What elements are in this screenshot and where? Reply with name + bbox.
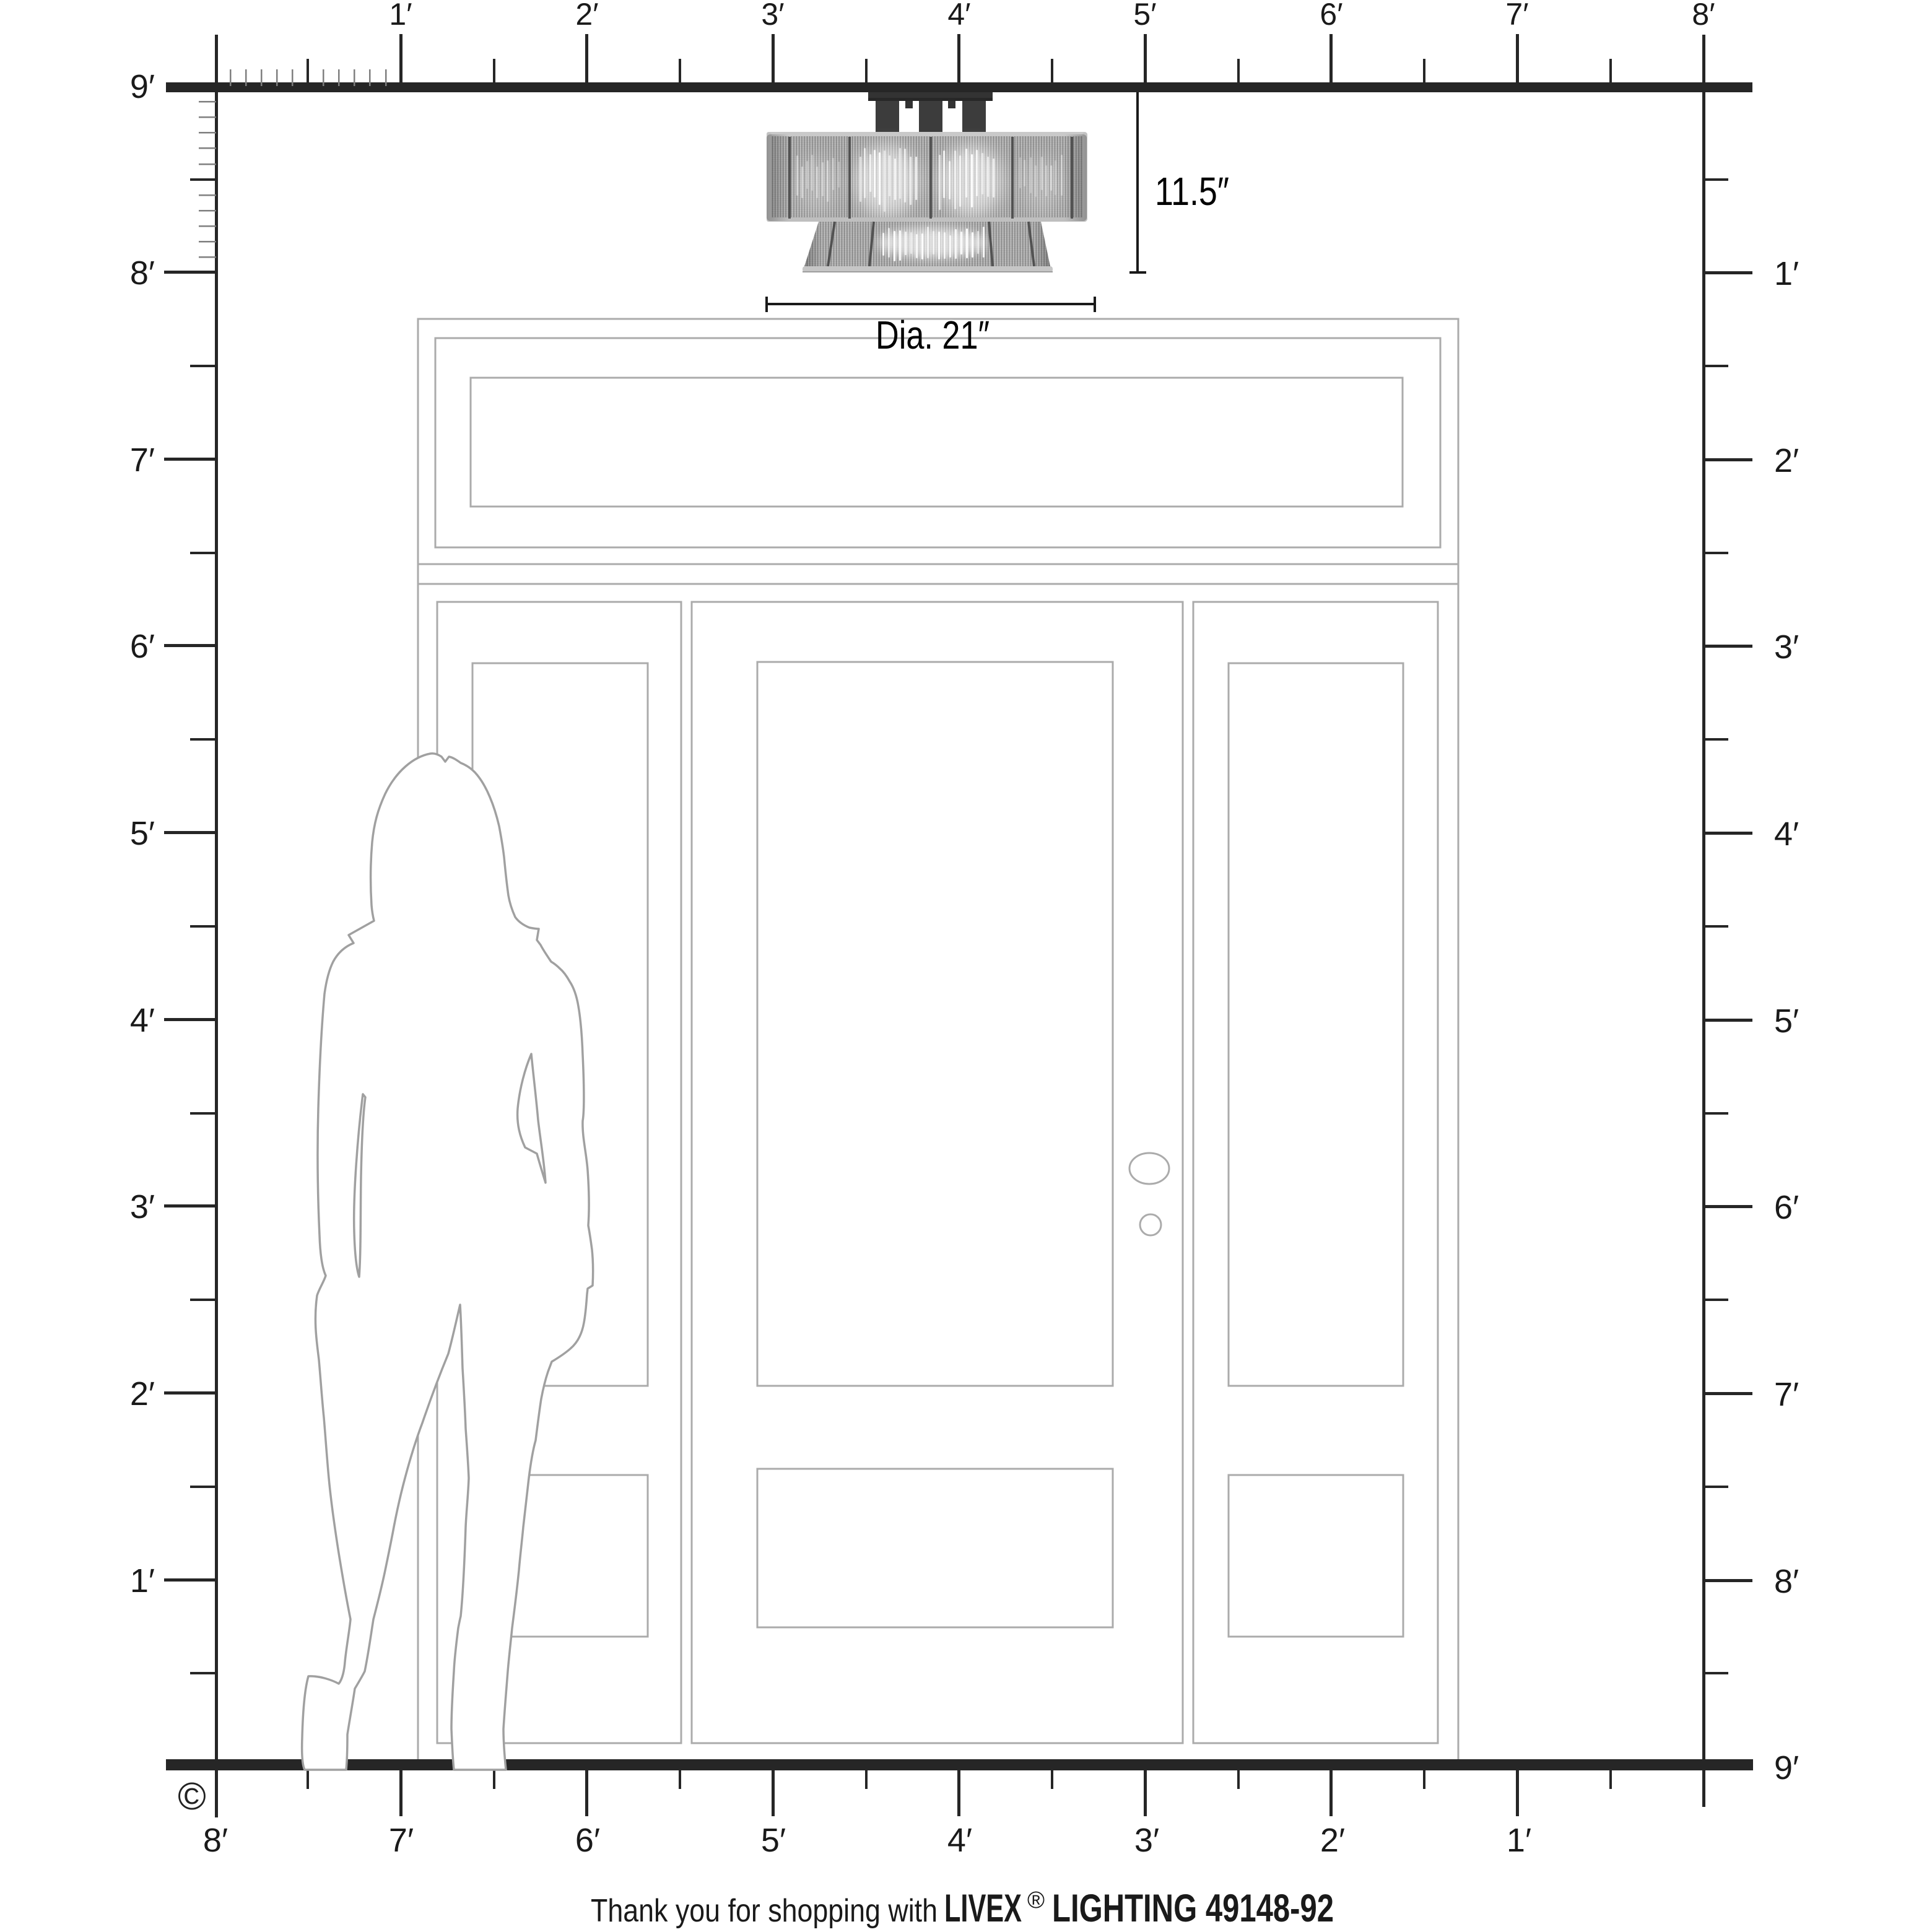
svg-text:4′: 4′ bbox=[947, 0, 970, 32]
svg-text:2′: 2′ bbox=[130, 1375, 155, 1412]
svg-text:8′: 8′ bbox=[1774, 1563, 1799, 1600]
svg-text:4′: 4′ bbox=[947, 1822, 972, 1859]
svg-text:Thank you for shopping with: Thank you for shopping with bbox=[591, 1893, 938, 1929]
svg-text:LIVEX: LIVEX bbox=[944, 1887, 1022, 1930]
svg-text:9′: 9′ bbox=[1774, 1749, 1799, 1786]
svg-text:LIGHTING 49148-92: LIGHTING 49148-92 bbox=[1052, 1887, 1334, 1930]
svg-text:8′: 8′ bbox=[130, 255, 155, 292]
svg-text:7′: 7′ bbox=[1505, 0, 1528, 32]
svg-text:5′: 5′ bbox=[761, 1822, 786, 1859]
svg-text:2′: 2′ bbox=[1320, 1822, 1345, 1859]
svg-text:©: © bbox=[178, 1775, 206, 1818]
svg-text:1′: 1′ bbox=[1507, 1822, 1531, 1859]
svg-text:5′: 5′ bbox=[1133, 0, 1156, 32]
svg-text:6′: 6′ bbox=[130, 628, 155, 665]
svg-text:4′: 4′ bbox=[130, 1002, 155, 1039]
svg-text:2′: 2′ bbox=[575, 0, 598, 32]
svg-text:7′: 7′ bbox=[389, 1822, 414, 1859]
svg-text:7′: 7′ bbox=[1774, 1376, 1799, 1413]
svg-text:8′: 8′ bbox=[203, 1822, 228, 1859]
svg-text:2′: 2′ bbox=[1774, 442, 1799, 479]
svg-text:®: ® bbox=[1027, 1887, 1045, 1913]
svg-text:1′: 1′ bbox=[130, 1562, 155, 1599]
svg-text:3′: 3′ bbox=[761, 0, 784, 32]
svg-text:4′: 4′ bbox=[1774, 816, 1799, 853]
svg-text:5′: 5′ bbox=[1774, 1003, 1799, 1040]
svg-text:11.5″: 11.5″ bbox=[1155, 169, 1229, 214]
svg-text:5′: 5′ bbox=[130, 815, 155, 852]
svg-text:6′: 6′ bbox=[575, 1822, 600, 1859]
svg-text:7′: 7′ bbox=[130, 442, 155, 479]
svg-text:1′: 1′ bbox=[1774, 255, 1799, 292]
svg-text:3′: 3′ bbox=[1774, 629, 1799, 666]
svg-text:1′: 1′ bbox=[389, 0, 412, 32]
svg-text:9′: 9′ bbox=[130, 68, 155, 105]
svg-text:Dia. 21″: Dia. 21″ bbox=[876, 313, 990, 357]
svg-text:8′: 8′ bbox=[1692, 0, 1715, 32]
svg-text:6′: 6′ bbox=[1320, 0, 1342, 32]
svg-text:6′: 6′ bbox=[1774, 1189, 1799, 1226]
svg-text:3′: 3′ bbox=[130, 1188, 155, 1225]
svg-text:3′: 3′ bbox=[1134, 1822, 1159, 1859]
